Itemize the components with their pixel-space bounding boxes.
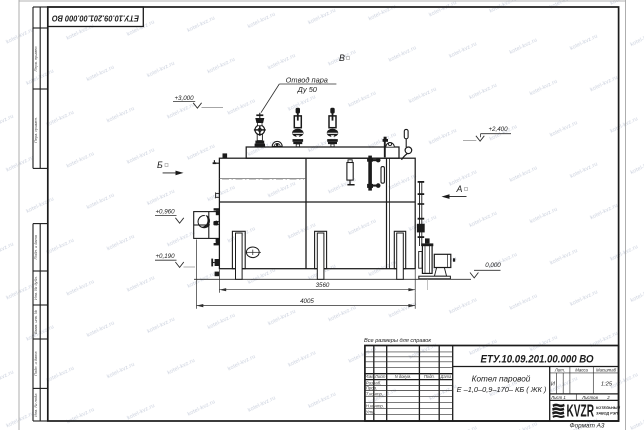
- svg-text:Перв. примен.: Перв. примен.: [33, 117, 38, 143]
- svg-text:ЕТУ.10.09.201.00.000 ВО: ЕТУ.10.09.201.00.000 ВО: [52, 13, 139, 23]
- svg-text:+0,960: +0,960: [155, 209, 175, 216]
- svg-text:КОТЕЛЬНЫЙ: КОТЕЛЬНЫЙ: [596, 406, 620, 410]
- svg-text:Формат А3: Формат А3: [570, 423, 605, 430]
- svg-text:Листов: Листов: [581, 395, 598, 400]
- svg-text:3560: 3560: [316, 282, 330, 289]
- svg-text:Подп.: Подп.: [424, 374, 435, 379]
- svg-text:Масса: Масса: [575, 367, 588, 372]
- svg-text:+0,190: +0,190: [155, 253, 175, 260]
- svg-text:Инв. № подл.: Инв. № подл.: [33, 393, 38, 417]
- svg-text:Подп. и дата: Подп. и дата: [33, 234, 38, 259]
- svg-text:Взам. инв. №: Взам. инв. №: [33, 309, 38, 334]
- svg-text:Ду 50: Ду 50: [297, 85, 318, 94]
- svg-text:+2,400: +2,400: [488, 126, 508, 133]
- svg-text:Т.контр.: Т.контр.: [366, 392, 383, 397]
- svg-text:Лист: Лист: [374, 374, 386, 379]
- svg-text:И: И: [551, 381, 555, 387]
- svg-text:А: А: [456, 184, 463, 194]
- svg-text:Масштаб: Масштаб: [596, 367, 617, 372]
- svg-text:Подп. и дата: Подп. и дата: [33, 351, 38, 376]
- svg-text:В: В: [339, 53, 345, 63]
- svg-text:ЗАВОД РЭП: ЗАВОД РЭП: [596, 412, 618, 416]
- svg-text:+3,000: +3,000: [174, 95, 194, 102]
- svg-text:Б: Б: [157, 160, 163, 170]
- svg-text:KVZR: KVZR: [567, 400, 595, 420]
- svg-text:ЕТУ.10.09.201.00.000 ВО: ЕТУ.10.09.201.00.000 ВО: [481, 353, 595, 365]
- svg-text:1:25: 1:25: [601, 381, 613, 387]
- svg-text:Утв.: Утв.: [366, 409, 376, 414]
- svg-text:Лит.: Лит.: [554, 367, 565, 372]
- svg-text:Инв. № дубл.: Инв. № дубл.: [33, 276, 38, 300]
- svg-text:4005: 4005: [300, 298, 314, 305]
- svg-text:Отвод пара: Отвод пара: [286, 76, 328, 85]
- svg-text:N докум.: N докум.: [395, 374, 412, 379]
- svg-text:Лист 1: Лист 1: [550, 395, 566, 400]
- svg-text:Изм.: Изм.: [365, 374, 374, 379]
- svg-text:0,000: 0,000: [485, 262, 501, 269]
- svg-text:Е –1,0–0,9–170– КБ ( ЖК ): Е –1,0–0,9–170– КБ ( ЖК ): [457, 385, 547, 394]
- svg-text:Пров.: Пров.: [366, 386, 377, 391]
- svg-text:Н.контр.: Н.контр.: [366, 403, 384, 408]
- svg-text:Все размеры для справок: Все размеры для справок: [364, 338, 431, 344]
- svg-text:Дата: Дата: [439, 374, 452, 379]
- svg-text:Котел паровой: Котел паровой: [472, 374, 531, 383]
- svg-text:Перв. примен.: Перв. примен.: [33, 46, 38, 72]
